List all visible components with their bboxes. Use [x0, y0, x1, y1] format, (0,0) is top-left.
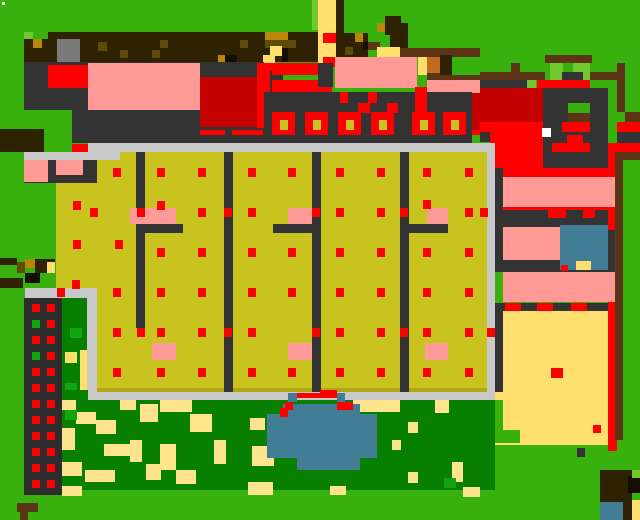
corridor: [272, 63, 318, 75]
tree: [390, 23, 408, 51]
tree-accent: [240, 40, 248, 48]
field-dot: [198, 288, 206, 297]
building-roof: [56, 160, 83, 175]
wall: [273, 224, 312, 233]
tower-dot: [47, 368, 55, 376]
field-dot: [377, 368, 385, 377]
field: [120, 152, 488, 160]
tree: [440, 55, 452, 78]
path: [87, 288, 97, 298]
corridor: [232, 130, 263, 135]
path: [487, 143, 495, 400]
wild-sand: [353, 400, 400, 412]
tower: [24, 298, 62, 495]
wild-sand: [140, 404, 158, 422]
sand-lot: [576, 261, 591, 270]
field-dot: [198, 328, 206, 337]
courtyard-grass: [495, 430, 520, 443]
field-dot: [224, 328, 232, 337]
tower-dot: [47, 432, 55, 440]
field-dot: [465, 328, 473, 337]
field-dot: [115, 240, 123, 249]
field-dot: [593, 425, 601, 433]
tree-accent: [265, 32, 288, 40]
fence: [617, 80, 625, 112]
corridor: [505, 303, 521, 311]
shrine-altar: [568, 113, 590, 122]
tower-dot: [47, 384, 55, 392]
rock: [57, 39, 80, 62]
field-dot: [312, 328, 320, 337]
fence: [511, 63, 520, 72]
building-roof: [24, 160, 48, 182]
corridor: [608, 143, 640, 152]
signpost: [17, 503, 38, 512]
wall: [224, 152, 233, 392]
field-dot: [72, 280, 80, 289]
wall: [145, 224, 183, 233]
tree-accent: [17, 262, 25, 273]
tree-accent: [263, 55, 275, 63]
shrine-floor: [480, 80, 527, 88]
wild-sand: [104, 444, 130, 456]
field-dot: [224, 208, 232, 217]
building-roof: [88, 63, 200, 110]
field-dot: [248, 208, 256, 217]
gate-roof: [545, 55, 592, 63]
field-dot: [137, 208, 145, 217]
path: [88, 392, 487, 400]
field-dot: [280, 408, 288, 417]
mat: [288, 208, 312, 224]
hall-roof: [503, 177, 617, 207]
gate-base: [562, 72, 583, 80]
building-roof: [472, 93, 480, 130]
corridor: [495, 168, 608, 177]
corridor: [548, 210, 566, 218]
tower-dot: [47, 416, 55, 424]
field-dot: [248, 168, 256, 177]
shrine-floor: [617, 132, 640, 143]
wild-sand: [190, 414, 212, 432]
garden-bush: [65, 383, 77, 390]
field-dot: [336, 168, 344, 177]
corridor: [358, 103, 370, 113]
mat: [152, 343, 176, 360]
corridor: [472, 130, 480, 135]
field-dot: [73, 201, 81, 210]
wild-bush: [65, 410, 77, 420]
wild-sand: [146, 464, 161, 480]
field-dot: [336, 288, 344, 297]
corridor: [562, 122, 590, 132]
mat: [288, 343, 312, 360]
corridor: [608, 152, 615, 177]
field-dot: [551, 368, 563, 378]
wall: [409, 224, 448, 233]
wall: [400, 152, 409, 392]
corridor: [480, 122, 490, 132]
field-edge: [97, 388, 487, 392]
field: [56, 183, 97, 288]
field-dot: [465, 168, 473, 177]
field-dot: [480, 208, 488, 217]
corridor: [571, 303, 587, 311]
field-dot: [57, 288, 65, 297]
fence: [615, 152, 623, 440]
tower-dot: [32, 352, 40, 360]
tower-dot: [32, 400, 40, 408]
tower-dot: [47, 304, 55, 312]
wild-sand: [96, 420, 116, 434]
mat: [130, 208, 176, 224]
tower-dot: [47, 480, 55, 488]
field-dot: [248, 288, 256, 297]
wild-sand: [392, 440, 401, 450]
field-dot: [377, 248, 385, 257]
tower-dot: [32, 480, 40, 488]
field-dot: [157, 168, 165, 177]
field-dot: [423, 328, 431, 337]
path: [88, 143, 487, 152]
field-dot: [312, 208, 320, 217]
field: [480, 152, 487, 392]
hut: [623, 502, 632, 520]
wild-sand: [176, 470, 196, 484]
field-dot: [198, 368, 206, 377]
wild-bush: [444, 478, 456, 488]
wild-sand: [435, 400, 449, 413]
wild-sand: [463, 487, 480, 497]
tree-accent: [98, 42, 107, 51]
tower-dot: [32, 432, 40, 440]
wild-sand: [330, 486, 346, 495]
field-dot: [423, 168, 431, 177]
field-dot: [400, 208, 408, 217]
corridor: [552, 143, 590, 152]
field-dot: [198, 168, 206, 177]
garden-bush: [70, 328, 82, 338]
path: [87, 298, 97, 392]
corridor: [340, 92, 348, 103]
corridor: [387, 103, 398, 113]
field-dot: [465, 368, 473, 377]
field-dot: [248, 248, 256, 257]
tree-accent: [345, 47, 353, 55]
building-roof: [318, 63, 333, 87]
tower-dot: [32, 448, 40, 456]
field-dot: [248, 328, 256, 337]
shrine-grass: [630, 160, 640, 166]
fence: [625, 112, 640, 122]
wild-sand: [62, 428, 75, 450]
tree-trunk: [336, 0, 344, 34]
tree-accent: [47, 262, 55, 273]
stall-center: [280, 120, 288, 130]
corridor: [200, 130, 225, 135]
tower-dot: [32, 320, 40, 328]
wild-sand: [160, 400, 192, 412]
field-dot: [248, 368, 256, 377]
field-dot: [377, 288, 385, 297]
tree-accent: [218, 55, 226, 63]
gate-pillar: [427, 57, 440, 73]
stall-center: [451, 120, 459, 130]
field-dot: [465, 288, 473, 297]
white-pixel: [2, 2, 5, 5]
field-dot: [400, 328, 408, 337]
courtyard-grass: [495, 400, 503, 430]
field-dot: [377, 168, 385, 177]
fence: [590, 72, 625, 80]
field-dot: [377, 328, 385, 337]
fence: [617, 63, 625, 72]
corridor: [297, 393, 337, 398]
fence: [440, 75, 480, 80]
field-dot: [465, 248, 473, 257]
field-dot: [113, 328, 121, 337]
courtyard-sand: [503, 311, 608, 393]
wild-sand: [214, 440, 226, 464]
hall-roof: [503, 227, 560, 260]
tower-dot: [47, 464, 55, 472]
field-dot: [157, 368, 165, 377]
path: [25, 288, 87, 298]
tree: [0, 129, 44, 152]
corridor: [320, 390, 337, 393]
tower-dot: [32, 368, 40, 376]
tower-dot: [47, 400, 55, 408]
field-dot: [90, 208, 98, 217]
field-dot: [157, 328, 165, 337]
wild-sand: [62, 400, 76, 410]
field-dot: [113, 368, 121, 377]
pond: [267, 414, 377, 458]
field-dot: [336, 368, 344, 377]
wild-sand: [408, 472, 418, 483]
stall-center: [313, 120, 321, 130]
tower-dot: [32, 304, 40, 312]
corridor: [490, 122, 548, 168]
wall: [495, 168, 503, 260]
hut: [628, 476, 640, 493]
hedge: [632, 470, 640, 478]
tree-accent: [25, 259, 35, 268]
wall: [136, 224, 145, 328]
shrine-white: [542, 128, 551, 137]
field-dot: [198, 248, 206, 257]
tower-dot: [32, 336, 40, 344]
tree-accent: [355, 33, 363, 42]
wild-sand: [130, 440, 142, 462]
corridor: [567, 135, 583, 143]
wild-sand: [250, 418, 265, 430]
hut: [600, 470, 632, 502]
corridor: [561, 265, 568, 271]
garden-sand: [65, 352, 77, 363]
tree-accent: [160, 40, 168, 48]
tower-dot: [47, 448, 55, 456]
courtyard-grass: [452, 57, 480, 73]
wild-sand: [76, 412, 96, 424]
field-dot: [198, 208, 206, 217]
tree-accent: [33, 39, 42, 48]
stall-center: [420, 120, 428, 130]
pond: [600, 502, 623, 520]
field-dot: [157, 201, 165, 210]
tower-dot: [32, 384, 40, 392]
field-dot: [113, 288, 121, 297]
sign-red: [323, 33, 336, 43]
tower-dot: [32, 416, 40, 424]
tree-accent: [25, 273, 40, 283]
wall: [312, 152, 321, 392]
field-dot: [336, 208, 344, 217]
tree-accent: [225, 55, 237, 63]
garden: [62, 390, 88, 400]
wild-sand: [62, 462, 82, 476]
building-roof: [335, 57, 417, 88]
field-dot: [487, 328, 495, 337]
pond: [297, 458, 360, 470]
tower-dot: [47, 352, 55, 360]
gate-grass: [563, 63, 573, 72]
crate: [72, 144, 88, 152]
path: [24, 152, 120, 160]
building-roof: [200, 77, 257, 127]
game-map-svg: [0, 0, 640, 520]
wild-sand: [62, 486, 82, 496]
tree-accent: [282, 48, 288, 62]
wild-sand: [632, 500, 640, 520]
field-dot: [423, 368, 431, 377]
fence: [480, 72, 545, 80]
stall-center: [379, 120, 387, 130]
corridor: [617, 122, 640, 132]
shrine-floor: [480, 132, 490, 142]
mat: [425, 343, 448, 360]
field-dot: [288, 288, 296, 297]
field-dot: [157, 248, 165, 257]
tower-dot: [32, 464, 40, 472]
sand-lot: [418, 57, 427, 75]
field-dot: [423, 200, 431, 209]
wall: [136, 152, 145, 208]
field-dot: [377, 208, 385, 217]
corridor: [415, 87, 427, 113]
tree: [0, 258, 17, 265]
field-dot: [423, 288, 431, 297]
corridor: [537, 303, 553, 311]
wild-sand: [85, 470, 115, 482]
fence: [622, 152, 640, 160]
mat: [427, 208, 448, 224]
tree-accent: [120, 50, 128, 58]
tree: [0, 278, 23, 288]
tower-dot: [47, 320, 55, 328]
corridor: [368, 92, 377, 103]
field-dot: [336, 248, 344, 257]
field-dot: [423, 248, 431, 257]
building-roof: [48, 65, 88, 88]
pond: [288, 393, 297, 402]
field-dot: [113, 168, 121, 177]
shrine-grass: [568, 103, 590, 113]
signpost: [20, 512, 28, 520]
wild-sand: [120, 400, 136, 410]
field-dot: [336, 328, 344, 337]
rock: [577, 448, 585, 457]
tree-accent: [152, 50, 160, 58]
tree-accent: [377, 23, 385, 32]
wall: [495, 303, 503, 392]
stall-center: [346, 120, 354, 130]
field-dot: [157, 288, 165, 297]
tower-dot: [47, 336, 55, 344]
field-dot: [465, 208, 473, 217]
garden-sand: [80, 350, 87, 390]
field-dot: [73, 240, 81, 249]
field-dot: [288, 368, 296, 377]
wild-sand: [408, 422, 418, 433]
corridor: [583, 210, 595, 218]
corridor: [337, 402, 353, 410]
pond: [337, 393, 345, 402]
tree-accent: [270, 46, 282, 56]
wild-sand: [160, 444, 176, 470]
shrine-grass: [527, 80, 536, 88]
hall-roof: [503, 272, 617, 302]
game-map[interactable]: [0, 0, 640, 520]
field-dot: [137, 328, 145, 337]
field-dot: [288, 168, 296, 177]
wild-sand: [248, 482, 273, 495]
field-dot: [288, 248, 296, 257]
